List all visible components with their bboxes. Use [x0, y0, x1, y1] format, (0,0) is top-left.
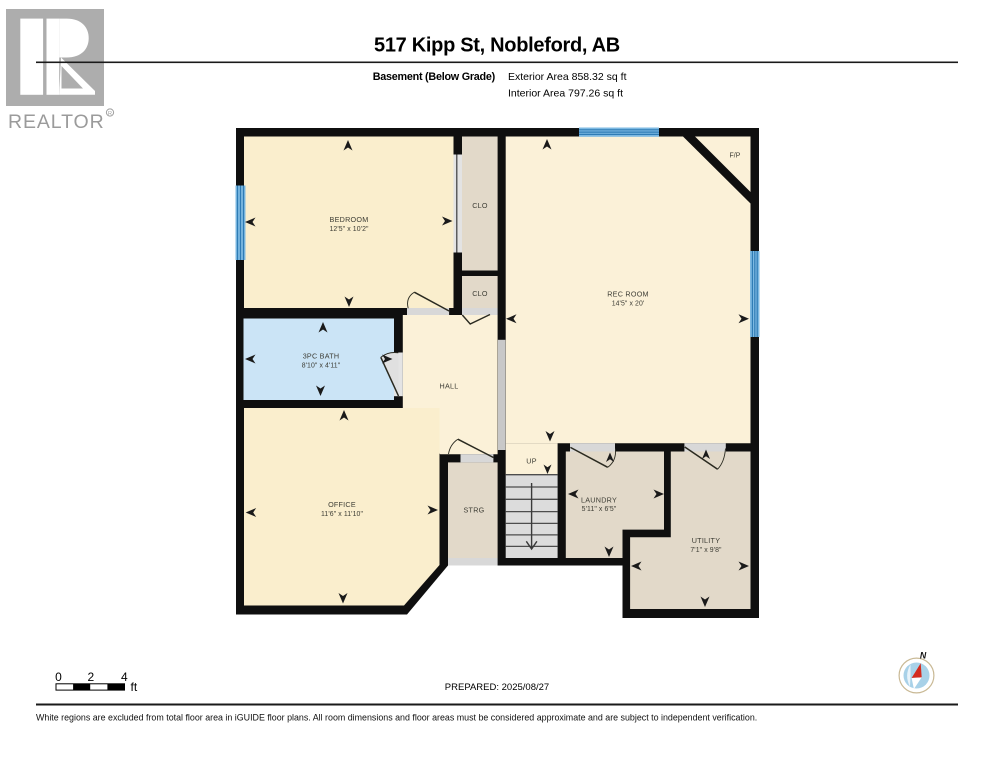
- svg-text:CLO: CLO: [472, 289, 488, 298]
- svg-text:517 Kipp St, Nobleford, AB: 517 Kipp St, Nobleford, AB: [374, 35, 620, 57]
- svg-text:UP: UP: [526, 456, 537, 465]
- svg-text:STRG: STRG: [464, 505, 485, 514]
- svg-text:3PC BATH: 3PC BATH: [303, 352, 340, 361]
- svg-text:Basement (Below Grade): Basement (Below Grade): [373, 71, 496, 83]
- svg-text:PREPARED: 2025/08/27: PREPARED: 2025/08/27: [445, 682, 549, 693]
- svg-text:4: 4: [121, 670, 128, 684]
- svg-text:R: R: [108, 111, 112, 117]
- svg-text:2: 2: [88, 670, 95, 684]
- svg-text:8'10" x 4'11": 8'10" x 4'11": [302, 362, 341, 369]
- svg-text:UTILITY: UTILITY: [692, 536, 721, 545]
- svg-text:11'6" x 11'10": 11'6" x 11'10": [321, 511, 363, 518]
- svg-text:White regions are excluded fro: White regions are excluded from total fl…: [36, 713, 757, 723]
- svg-text:CLO: CLO: [472, 201, 488, 210]
- svg-text:REALTOR: REALTOR: [8, 111, 105, 133]
- svg-text:12'5" x 10'2": 12'5" x 10'2": [329, 226, 369, 233]
- svg-text:0: 0: [55, 670, 62, 684]
- svg-text:5'11" x 6'5": 5'11" x 6'5": [582, 506, 617, 513]
- svg-text:Interior Area 797.26 sq ft: Interior Area 797.26 sq ft: [508, 88, 623, 100]
- svg-text:14'5" x 20': 14'5" x 20': [612, 300, 645, 307]
- svg-text:ft: ft: [131, 680, 138, 694]
- svg-text:F/P: F/P: [729, 153, 740, 160]
- svg-text:OFFICE: OFFICE: [328, 500, 356, 509]
- svg-text:N: N: [920, 651, 927, 661]
- svg-text:Exterior Area 858.32 sq ft: Exterior Area 858.32 sq ft: [508, 71, 627, 83]
- svg-text:7'1" x 9'8": 7'1" x 9'8": [690, 547, 722, 554]
- svg-text:HALL: HALL: [440, 381, 459, 390]
- svg-text:BEDROOM: BEDROOM: [330, 215, 369, 224]
- svg-text:LAUNDRY: LAUNDRY: [581, 495, 617, 504]
- svg-text:REC ROOM: REC ROOM: [607, 290, 649, 299]
